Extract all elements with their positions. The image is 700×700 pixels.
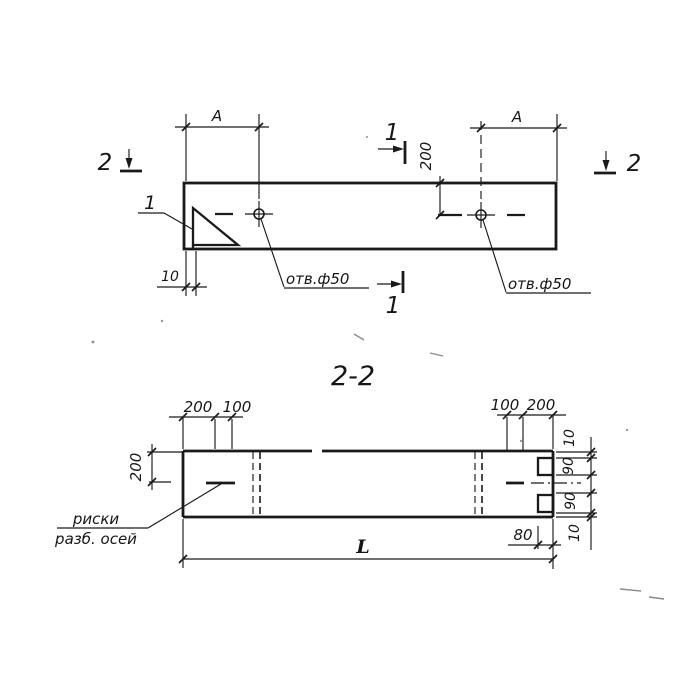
drawing-sheet: A A 200 10 — [0, 0, 700, 700]
dimension-width-half: 200 — [127, 444, 182, 490]
scan-speck — [520, 440, 522, 442]
dimension-a-left: A — [175, 107, 269, 199]
beam-outline — [184, 183, 556, 249]
technical-drawing: A A 200 10 — [0, 0, 700, 700]
scan-stroke — [649, 597, 664, 599]
dim-text-10: 10 — [567, 524, 583, 542]
scan-stroke — [354, 334, 364, 340]
end-notch-top — [538, 458, 553, 475]
dimensions-top-right: 100 200 — [491, 396, 566, 450]
dim-text-90: 90 — [561, 457, 577, 475]
section-title: 2-2 — [331, 361, 375, 392]
arrowhead-right — [393, 146, 404, 153]
hole-label-right: отв.ф50 — [508, 275, 571, 293]
leader-line — [261, 219, 284, 287]
detail-mark-text: 1 — [144, 192, 156, 214]
dim-text-10: 10 — [161, 269, 179, 285]
section-number: 2 — [627, 151, 642, 177]
hole-left — [215, 201, 273, 227]
scan-stroke — [430, 353, 443, 356]
section-number: 2 — [98, 150, 113, 176]
scan-speck — [92, 341, 95, 344]
leader-line — [148, 484, 221, 528]
dim-text: 200 — [127, 453, 145, 482]
dim-text-100: 100 — [491, 396, 520, 414]
dimension-10: 10 — [157, 251, 207, 296]
dim-text-a-right: A — [511, 108, 522, 126]
dimensions-right-side: 10 90 90 10 — [556, 429, 597, 550]
dimension-length: L — [179, 519, 557, 568]
end-notch-bottom — [538, 495, 553, 512]
scan-speck — [366, 136, 368, 138]
dimension-200-offset: 200 — [417, 142, 444, 219]
leader-line — [483, 220, 506, 292]
section-mark-1-bottom: 1 — [377, 271, 403, 319]
dim-text-a-left: A — [211, 107, 222, 125]
dim-text-100: 100 — [223, 398, 252, 416]
axes-note-line1: риски — [72, 510, 120, 528]
section-mark-2-right: 2 — [594, 151, 641, 177]
arrowhead-right — [391, 281, 402, 288]
dimensions-top-left: 200 100 — [169, 398, 251, 449]
dim-text-10: 10 — [562, 429, 578, 447]
dim-text-80: 80 — [513, 526, 532, 544]
hole-right — [438, 202, 525, 228]
arrowhead-down — [603, 160, 610, 171]
section-mark-2-left: 2 — [98, 149, 142, 176]
hole-label-left: отв.ф50 — [286, 270, 349, 288]
dim-text-200: 200 — [184, 398, 213, 416]
dimension-80: 80 — [508, 519, 561, 569]
dim-text-200: 200 — [527, 396, 556, 414]
axes-note-line2: разб. осей — [54, 530, 137, 548]
dim-text-90: 90 — [563, 492, 579, 510]
hole-callout-right: отв.ф50 — [483, 220, 591, 293]
section-view: 2-2 200 — [54, 361, 597, 569]
section-number: 1 — [386, 293, 401, 319]
arrowhead-down — [126, 158, 133, 169]
scan-speck — [161, 320, 163, 322]
dim-text-200: 200 — [417, 142, 435, 171]
hole-callout-left: отв.ф50 — [261, 219, 369, 288]
dimension-a-right: A — [470, 108, 567, 199]
section-mark-1-top: 1 — [378, 120, 405, 164]
leader-line — [164, 213, 192, 229]
top-view: A A 200 10 — [98, 107, 642, 319]
dim-text-length: L — [355, 536, 369, 558]
section-number: 1 — [385, 120, 400, 146]
scan-stroke — [620, 589, 641, 591]
scan-speck — [626, 429, 628, 431]
